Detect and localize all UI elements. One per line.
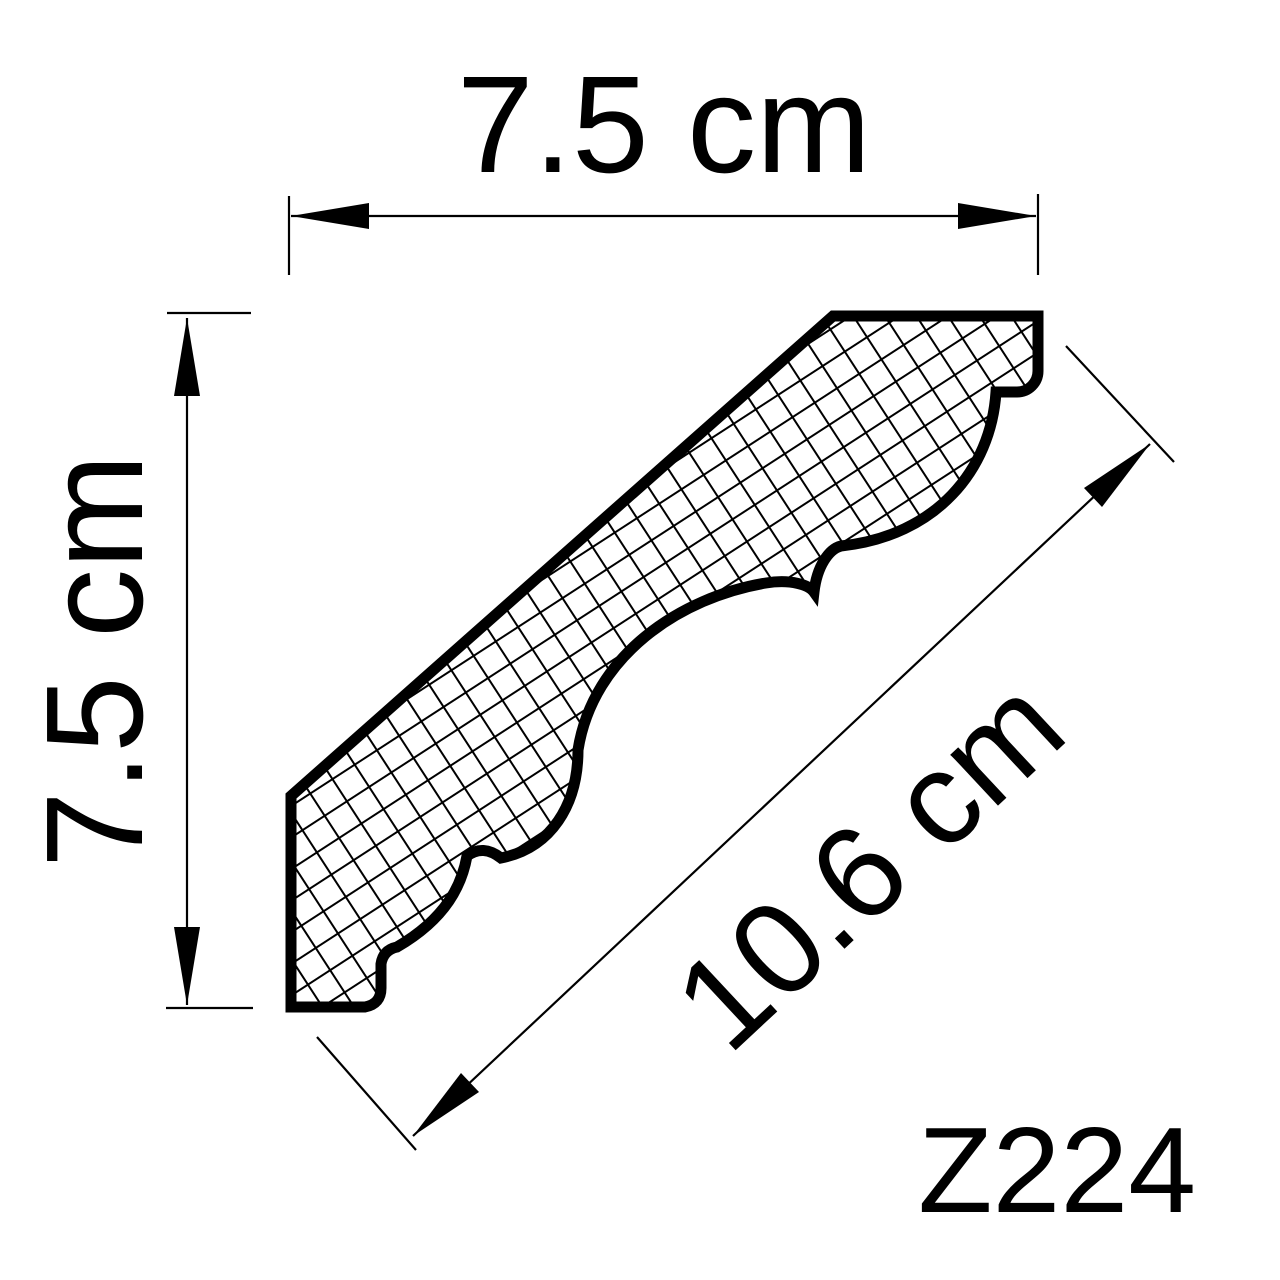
product-code-label: Z224	[918, 1102, 1196, 1238]
extension-line-lower	[317, 1037, 416, 1150]
arrowhead-left-icon	[291, 203, 369, 229]
arrowhead-up-icon	[174, 318, 200, 396]
arrowhead-down-icon	[174, 927, 200, 1005]
extension-line-upper	[1066, 346, 1174, 462]
arrowhead-right-icon	[958, 203, 1036, 229]
technical-drawing-page: 7.5 cm 7.5 cm 10.6 cm Z224	[0, 0, 1280, 1280]
left-height-dimension-label: 7.5 cm	[18, 454, 172, 868]
molding-profile-drawing: 7.5 cm 7.5 cm 10.6 cm Z224	[0, 0, 1280, 1280]
arrowhead-upper-right-icon	[1084, 444, 1150, 507]
arrowhead-lower-left-icon	[413, 1073, 479, 1136]
top-width-dimension-label: 7.5 cm	[457, 48, 871, 202]
left-height-dimension	[166, 313, 253, 1008]
top-width-dimension	[289, 194, 1038, 275]
diagonal-face-dimension-label: 10.6 cm	[647, 650, 1091, 1078]
